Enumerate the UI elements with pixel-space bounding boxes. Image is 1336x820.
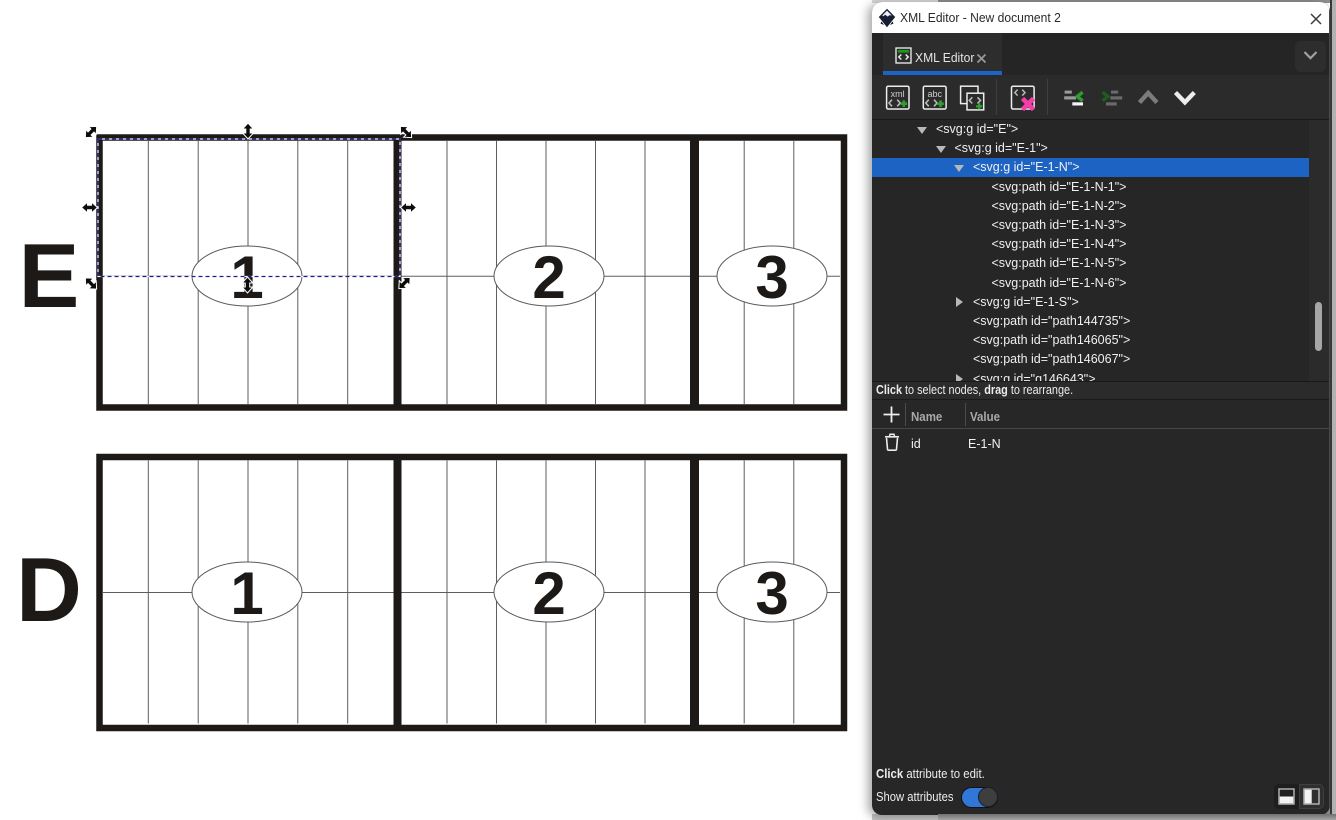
- svg-text:3: 3: [755, 560, 788, 627]
- svg-text:1: 1: [230, 560, 263, 627]
- svg-text:2: 2: [532, 560, 565, 627]
- svg-text:3: 3: [755, 244, 788, 311]
- svg-text:D: D: [16, 540, 82, 641]
- svg-text:E: E: [19, 226, 80, 327]
- svg-text:abc: abc: [928, 89, 943, 99]
- svg-text:2: 2: [532, 244, 565, 311]
- svg-text:xml: xml: [891, 89, 905, 99]
